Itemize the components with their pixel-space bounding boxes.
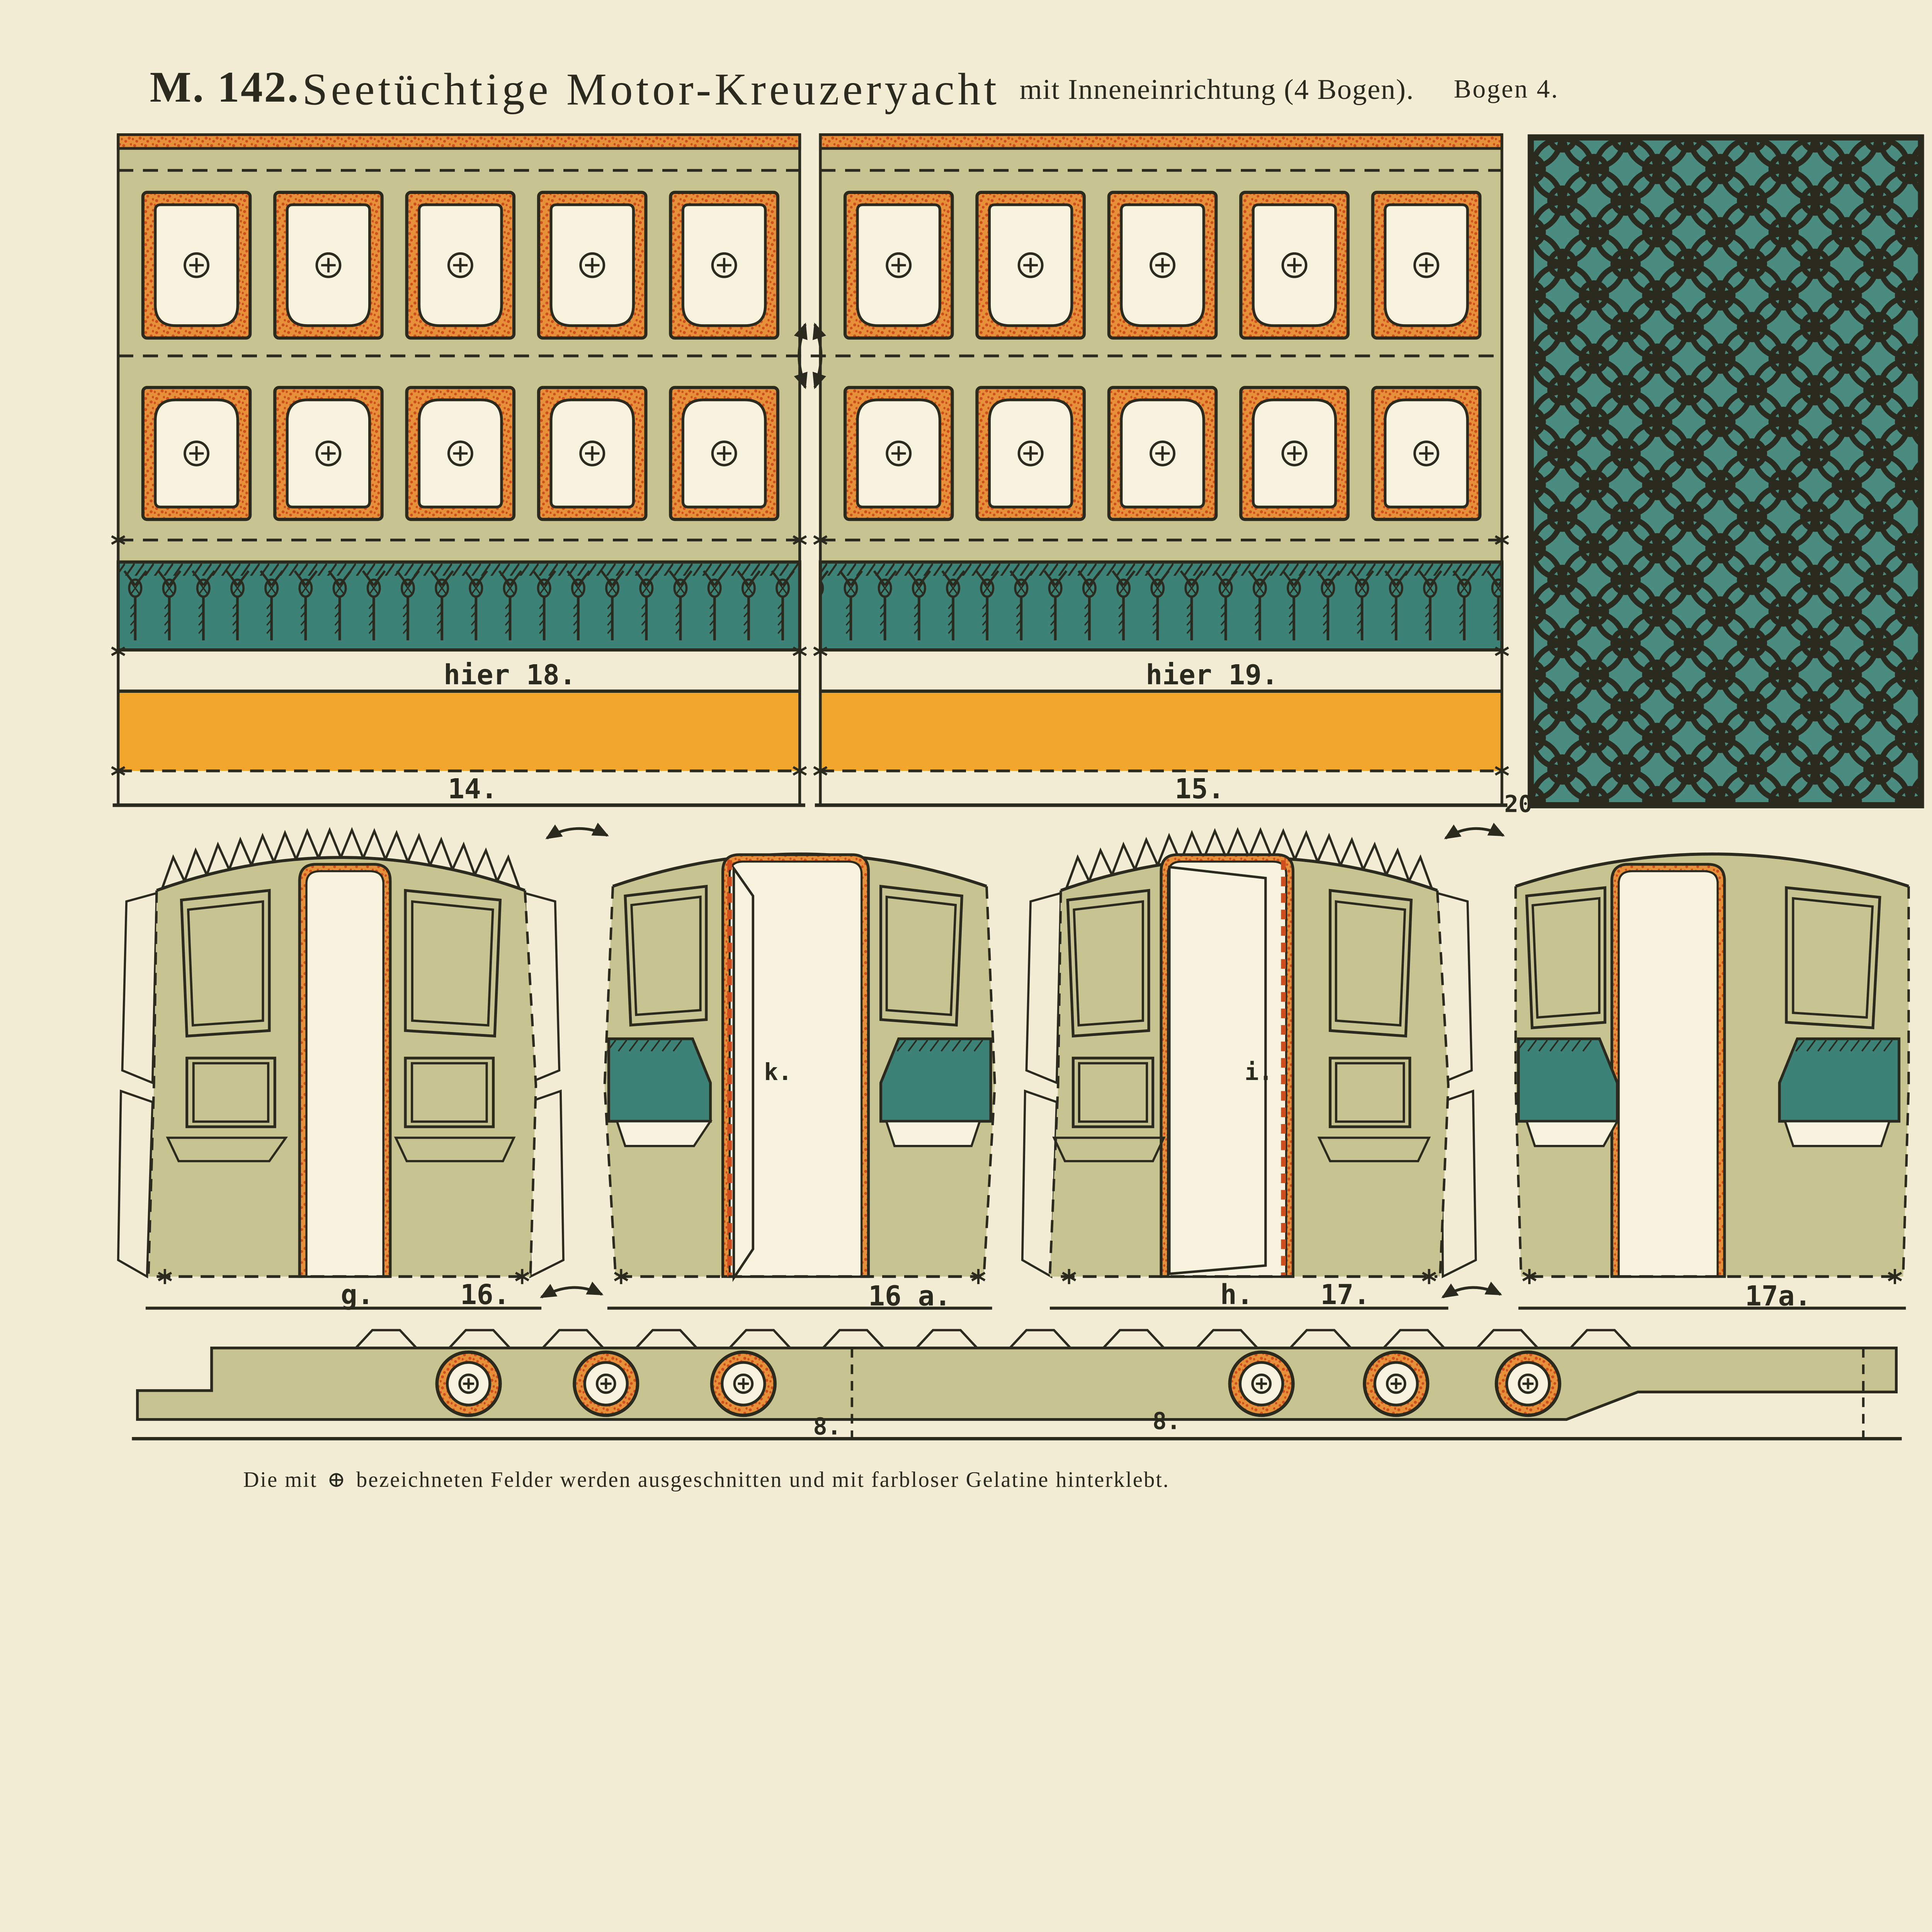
hull-strip-8	[132, 1330, 1901, 1439]
side-panel-15	[815, 135, 1507, 805]
part-number-15: 15.	[1175, 773, 1224, 805]
glue-tab	[1289, 1330, 1352, 1349]
cabin-window	[977, 192, 1084, 338]
glue-tab	[915, 1330, 978, 1349]
glue-tab	[1102, 1330, 1165, 1349]
cabin-window	[275, 388, 382, 519]
cabin-window	[845, 192, 952, 338]
title-series: M. 142.	[150, 63, 300, 111]
part-number-20: 20	[1504, 791, 1532, 818]
glue-flap	[1026, 893, 1061, 1083]
join-arrow	[1443, 1287, 1500, 1297]
letter-h: h.	[1220, 1279, 1253, 1311]
glue-tab	[1196, 1330, 1259, 1349]
glue-tab	[1569, 1330, 1633, 1349]
part-number-8-right: 8.	[1153, 1408, 1181, 1435]
glue-tab	[1009, 1330, 1072, 1349]
glue-tab	[822, 1330, 885, 1349]
cabin-window	[670, 388, 777, 519]
porthole	[1497, 1352, 1560, 1415]
lattice-panel-20	[1531, 138, 1921, 805]
part-number-16: 16.	[460, 1279, 510, 1311]
porthole	[437, 1352, 500, 1415]
glue-tab	[1383, 1330, 1446, 1349]
part-number-17a: 17a.	[1745, 1280, 1811, 1312]
glue-hint-18: hier 18.	[444, 659, 576, 691]
end-wall-16	[118, 830, 563, 1308]
cabin-window	[539, 388, 646, 519]
hull-band	[820, 691, 1502, 771]
cabin-window	[1241, 388, 1348, 519]
cabin-window	[977, 388, 1084, 519]
part-number-16a: 16 a.	[868, 1280, 951, 1312]
join-arrow	[547, 828, 607, 838]
door-leaf	[734, 869, 753, 1278]
part-number-8-left: 8.	[813, 1413, 841, 1440]
bulwark-panel	[609, 1039, 710, 1121]
cabin-window	[1109, 388, 1216, 519]
glue-tab	[448, 1330, 511, 1349]
join-arrow	[541, 1287, 602, 1297]
cabin-window	[1373, 192, 1480, 338]
letter-g: g.	[341, 1279, 374, 1311]
sheet-canvas: M. 142. Seetüchtige Motor-Kreuzeryacht m…	[0, 0, 1932, 1542]
title-subtitle: mit Inneneinrichtung (4 Bogen).	[1020, 73, 1414, 105]
cabin-window	[1241, 192, 1348, 338]
title-name: Seetüchtige Motor-Kreuzeryacht	[302, 64, 1000, 114]
cabin-window	[845, 388, 952, 519]
cabin-window	[275, 192, 382, 338]
door-letter-i: i.	[1245, 1059, 1273, 1086]
glue-hint-19: hier 19.	[1146, 659, 1278, 691]
glue-flap	[118, 1091, 153, 1277]
end-wall-16a	[605, 854, 995, 1308]
paper-model-sheet: M. 142. Seetüchtige Motor-Kreuzeryacht m…	[0, 0, 1932, 1542]
glue-flap	[122, 893, 157, 1083]
bulwark-panel	[1779, 1039, 1899, 1121]
glue-tab	[635, 1330, 698, 1349]
footnote: Die mit⊕bezeichneten Felder werden ausge…	[243, 1468, 1169, 1492]
porthole	[1230, 1352, 1293, 1415]
footnote-prefix: Die mit	[243, 1468, 317, 1492]
footnote-suffix: bezeichneten Felder werden ausgeschnitte…	[356, 1468, 1170, 1492]
porthole	[712, 1352, 775, 1415]
hull-band	[118, 691, 800, 771]
part-number-14: 14.	[448, 773, 497, 805]
join-arrow	[1446, 828, 1503, 838]
cabin-window	[1373, 388, 1480, 519]
end-wall-17a	[1515, 854, 1908, 1308]
porthole	[1364, 1352, 1428, 1415]
door-letter-k: k.	[764, 1059, 792, 1086]
cabin-window	[407, 192, 514, 338]
cabin-window	[539, 192, 646, 338]
glue-tab	[728, 1330, 792, 1349]
porthole	[574, 1352, 638, 1415]
cut-symbol: ⊕	[327, 1468, 347, 1492]
title-sheet: Bogen 4.	[1454, 74, 1559, 103]
cabin-window	[143, 192, 250, 338]
cabin-window	[407, 388, 514, 519]
cabin-window	[143, 388, 250, 519]
glue-tab	[541, 1330, 605, 1349]
side-panel-14	[113, 135, 805, 805]
glue-tab	[355, 1330, 418, 1349]
glue-tab	[1476, 1330, 1539, 1349]
cabin-window	[1109, 192, 1216, 338]
part-number-17: 17.	[1320, 1279, 1370, 1311]
cabin-window	[670, 192, 777, 338]
bulwark-panel	[1519, 1039, 1617, 1121]
